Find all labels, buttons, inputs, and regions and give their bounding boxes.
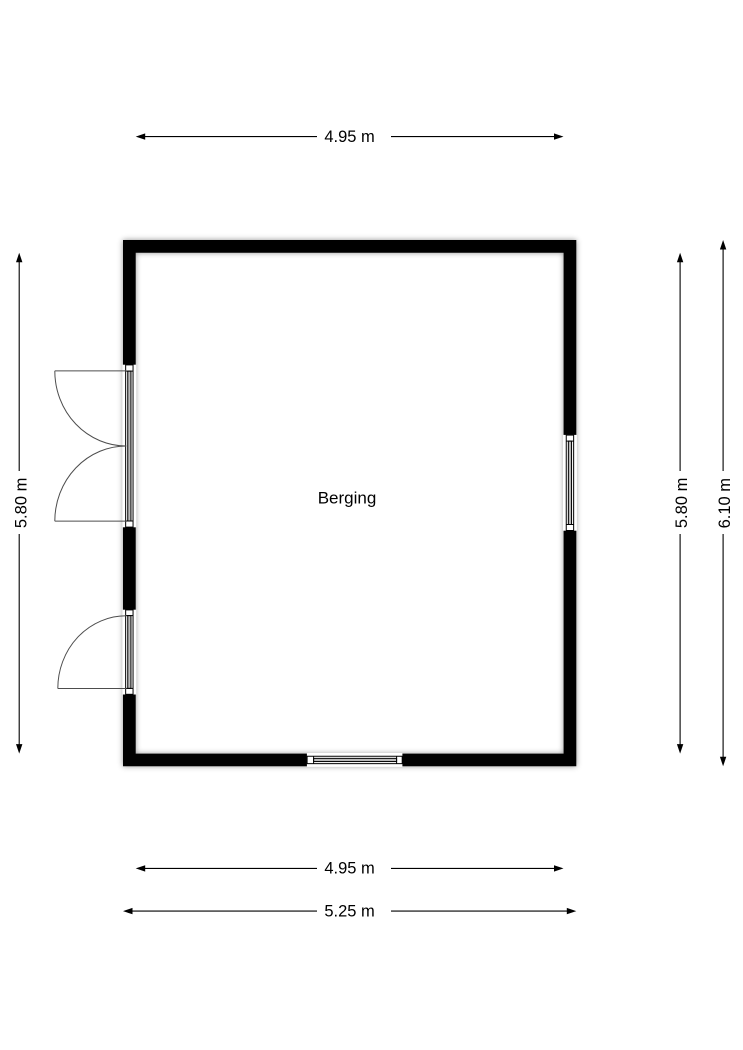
svg-text:4.95 m: 4.95 m <box>324 128 374 146</box>
svg-text:5.25 m: 5.25 m <box>324 902 374 920</box>
svg-text:4.95 m: 4.95 m <box>324 860 374 878</box>
svg-text:5.80 m: 5.80 m <box>673 478 691 528</box>
svg-text:6.10 m: 6.10 m <box>716 478 734 528</box>
svg-text:Berging: Berging <box>318 488 377 507</box>
svg-text:5.80 m: 5.80 m <box>13 478 31 528</box>
